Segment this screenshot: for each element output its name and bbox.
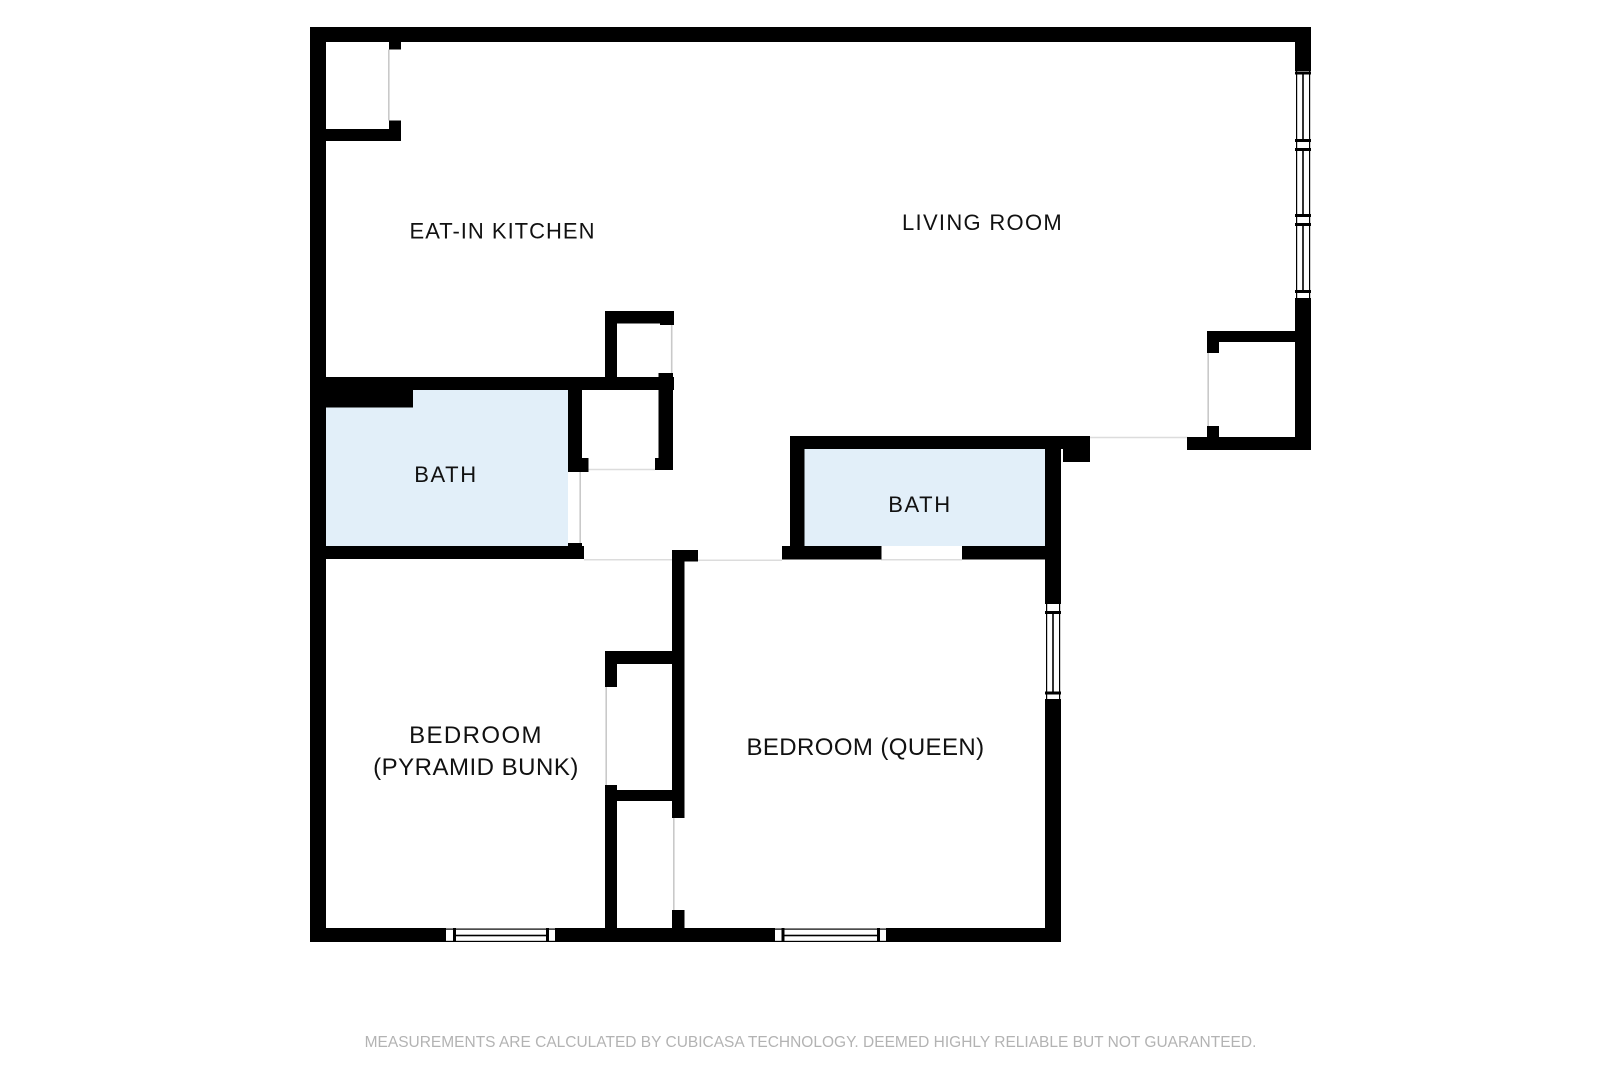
svg-text:BEDROOM (QUEEN): BEDROOM (QUEEN) xyxy=(746,734,984,761)
svg-text:BATH: BATH xyxy=(414,462,477,487)
svg-text:BEDROOM: BEDROOM xyxy=(409,722,543,749)
svg-text:(PYRAMID BUNK): (PYRAMID BUNK) xyxy=(373,754,579,781)
svg-text:LIVING ROOM: LIVING ROOM xyxy=(902,210,1063,235)
svg-text:BATH: BATH xyxy=(888,492,951,517)
svg-text:EAT-IN KITCHEN: EAT-IN KITCHEN xyxy=(410,219,596,244)
svg-text:MEASUREMENTS ARE CALCULATED BY: MEASUREMENTS ARE CALCULATED BY CUBICASA … xyxy=(365,1034,1257,1051)
